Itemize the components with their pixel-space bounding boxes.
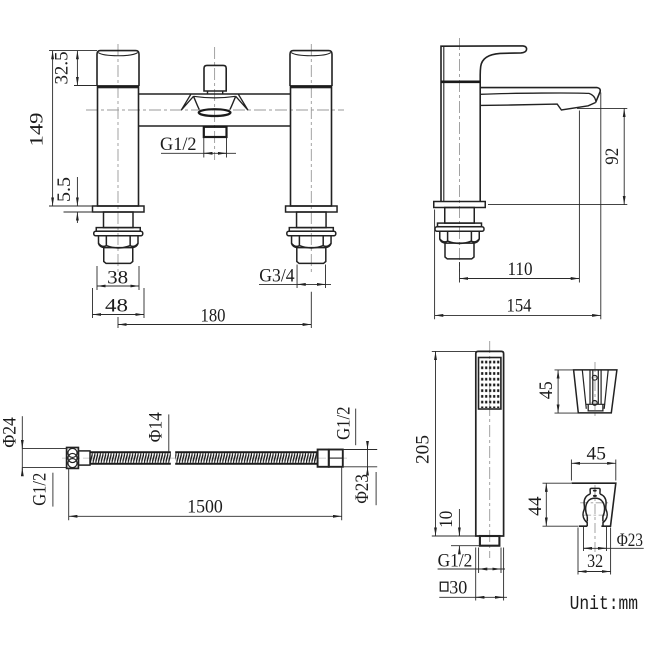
svg-text:38: 38 bbox=[107, 268, 128, 289]
svg-text:45: 45 bbox=[536, 381, 557, 399]
svg-text:110: 110 bbox=[508, 259, 533, 280]
svg-text:G1/2: G1/2 bbox=[30, 473, 51, 506]
svg-text:92: 92 bbox=[602, 148, 623, 165]
svg-text:149: 149 bbox=[27, 113, 48, 147]
svg-text:32.5: 32.5 bbox=[52, 52, 73, 85]
svg-text:154: 154 bbox=[507, 296, 532, 317]
svg-text:205: 205 bbox=[412, 435, 433, 464]
svg-text:5.5: 5.5 bbox=[54, 177, 75, 202]
svg-text:45: 45 bbox=[587, 443, 606, 464]
svg-text:Unit:mm: Unit:mm bbox=[570, 593, 639, 615]
svg-text:Φ23: Φ23 bbox=[352, 474, 373, 504]
svg-text:Φ24: Φ24 bbox=[0, 417, 21, 448]
svg-text:G1/2: G1/2 bbox=[160, 134, 197, 155]
svg-text:48: 48 bbox=[105, 296, 128, 317]
svg-text:30: 30 bbox=[449, 577, 467, 598]
svg-text:32: 32 bbox=[587, 551, 603, 572]
svg-text:G1/2: G1/2 bbox=[438, 550, 473, 571]
svg-text:1500: 1500 bbox=[187, 496, 223, 517]
svg-text:180: 180 bbox=[201, 306, 226, 327]
svg-text:44: 44 bbox=[525, 496, 546, 516]
svg-text:G1/2: G1/2 bbox=[334, 407, 355, 440]
svg-text:Φ23: Φ23 bbox=[617, 530, 643, 551]
svg-text:Φ14: Φ14 bbox=[146, 412, 167, 442]
svg-text:10: 10 bbox=[436, 511, 457, 528]
svg-text:G3/4: G3/4 bbox=[259, 265, 295, 286]
